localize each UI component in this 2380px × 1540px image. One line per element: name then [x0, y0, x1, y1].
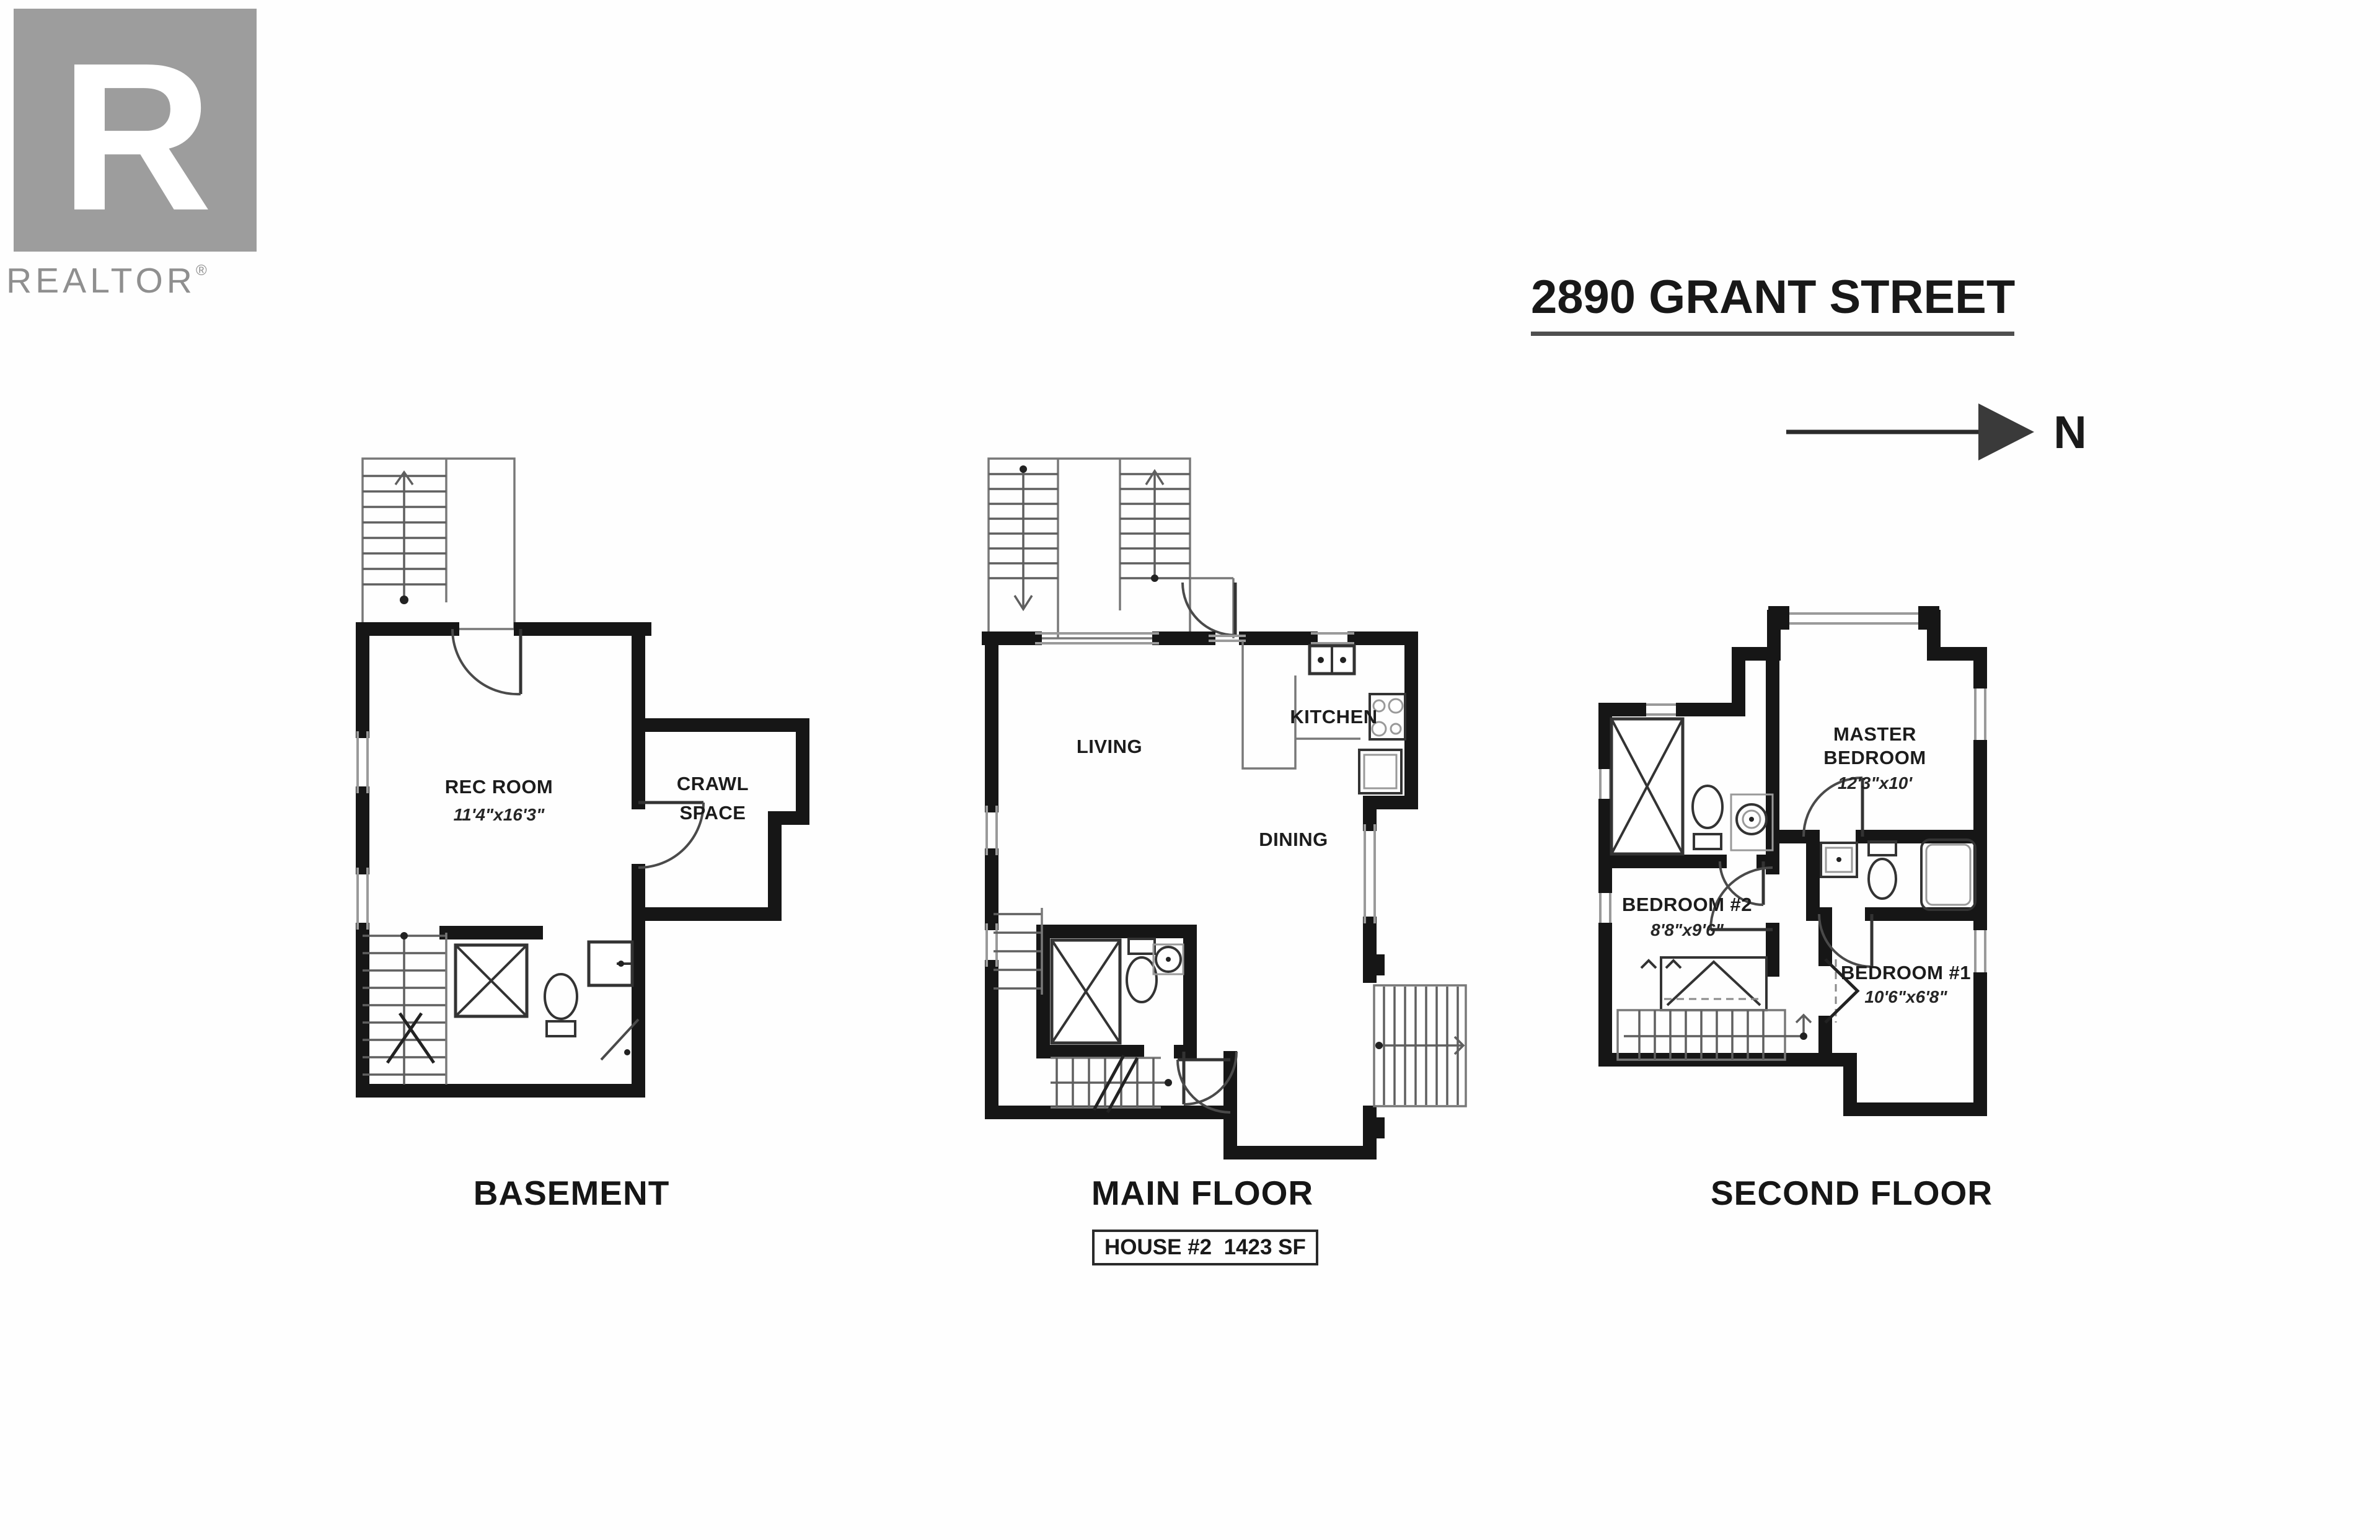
stair-break-icon: [1094, 1055, 1137, 1112]
sink-icon: [1153, 944, 1183, 974]
second-walls: [1600, 606, 1985, 1109]
second-floor-caption: SECOND FLOOR: [1711, 1173, 1971, 1213]
realtor-logo-r-icon: R: [60, 19, 213, 255]
living-label: LIVING: [1077, 736, 1142, 757]
realtor-logo: R: [10, 5, 270, 260]
basement-plan: REC ROOM 11'4"x16'3" CRAWL SPACE: [341, 440, 899, 1134]
toilet-icon: [1693, 786, 1722, 849]
crawl-space-label-1: CRAWL: [677, 773, 749, 794]
toilet-icon: [1127, 939, 1157, 1002]
floorplan-sheet: R REALTOR® 2890 GRANT STREET N: [0, 0, 2380, 1540]
page-title: 2890 GRANT STREET: [1531, 270, 2014, 336]
dining-label: DINING: [1259, 829, 1328, 850]
ensuite-bathroom: [1611, 719, 1773, 905]
bedroom1-label: BEDROOM #1: [1841, 962, 1971, 983]
master-label-2: BEDROOM: [1823, 747, 1926, 768]
master-dims: 12'3"x10': [1838, 773, 1913, 793]
bedroom2-dims: 8'8"x9'6": [1651, 920, 1724, 939]
main-floor-plan: LIVING KITCHEN DINING: [964, 431, 1522, 1249]
sink-icon: [589, 942, 633, 985]
deck-stairs: [1364, 954, 1466, 1138]
basement-bathroom: [456, 942, 638, 1060]
fridge-icon: [1359, 750, 1401, 793]
stair-break-icon: [387, 1013, 434, 1063]
toilet-icon: [1869, 842, 1896, 899]
main-floor-caption: MAIN FLOOR: [1072, 1173, 1333, 1213]
stair-start-dot: [400, 596, 408, 604]
master-label-1: MASTER: [1833, 723, 1916, 745]
basement-stairs-lower: [363, 932, 446, 1085]
north-label: N: [2053, 407, 2086, 458]
realtor-wordmark: REALTOR®: [6, 260, 304, 301]
registered-mark-icon: ®: [196, 262, 207, 279]
bedroom2-label: BEDROOM #2: [1622, 894, 1752, 915]
bedroom1-dims: 10'6"x6'8": [1864, 987, 1947, 1006]
bathtub-icon: [1921, 840, 1975, 910]
kitchen-sink-icon: [1310, 646, 1354, 674]
basement-caption: BASEMENT: [441, 1173, 702, 1213]
realtor-wordmark-text: REALTOR: [6, 261, 196, 301]
rec-room-label: REC ROOM: [445, 776, 553, 798]
main-bathroom-2f: [1819, 840, 1975, 967]
toilet-icon: [545, 974, 577, 1036]
north-arrow: N: [1779, 387, 2126, 480]
crawl-space-label-2: SPACE: [679, 802, 746, 824]
north-arrow-head-icon: [1978, 403, 2034, 460]
basement-doors: [452, 629, 703, 868]
house-info-box: HOUSE #2 1423 SF: [1092, 1230, 1318, 1265]
rec-room-dims: 11'4"x16'3": [454, 805, 545, 824]
second-floor-plan: MASTER BEDROOM 12'3"x10' BEDROOM #2 8'8"…: [1580, 589, 2089, 1270]
second-stairs: [1618, 957, 1811, 1060]
main-stairwell: [989, 459, 1235, 638]
basement-stairs-up: [363, 459, 514, 629]
window-icon: [987, 633, 1375, 967]
sink-icon: [1821, 843, 1857, 877]
kitchen-label: KITCHEN: [1290, 706, 1377, 728]
